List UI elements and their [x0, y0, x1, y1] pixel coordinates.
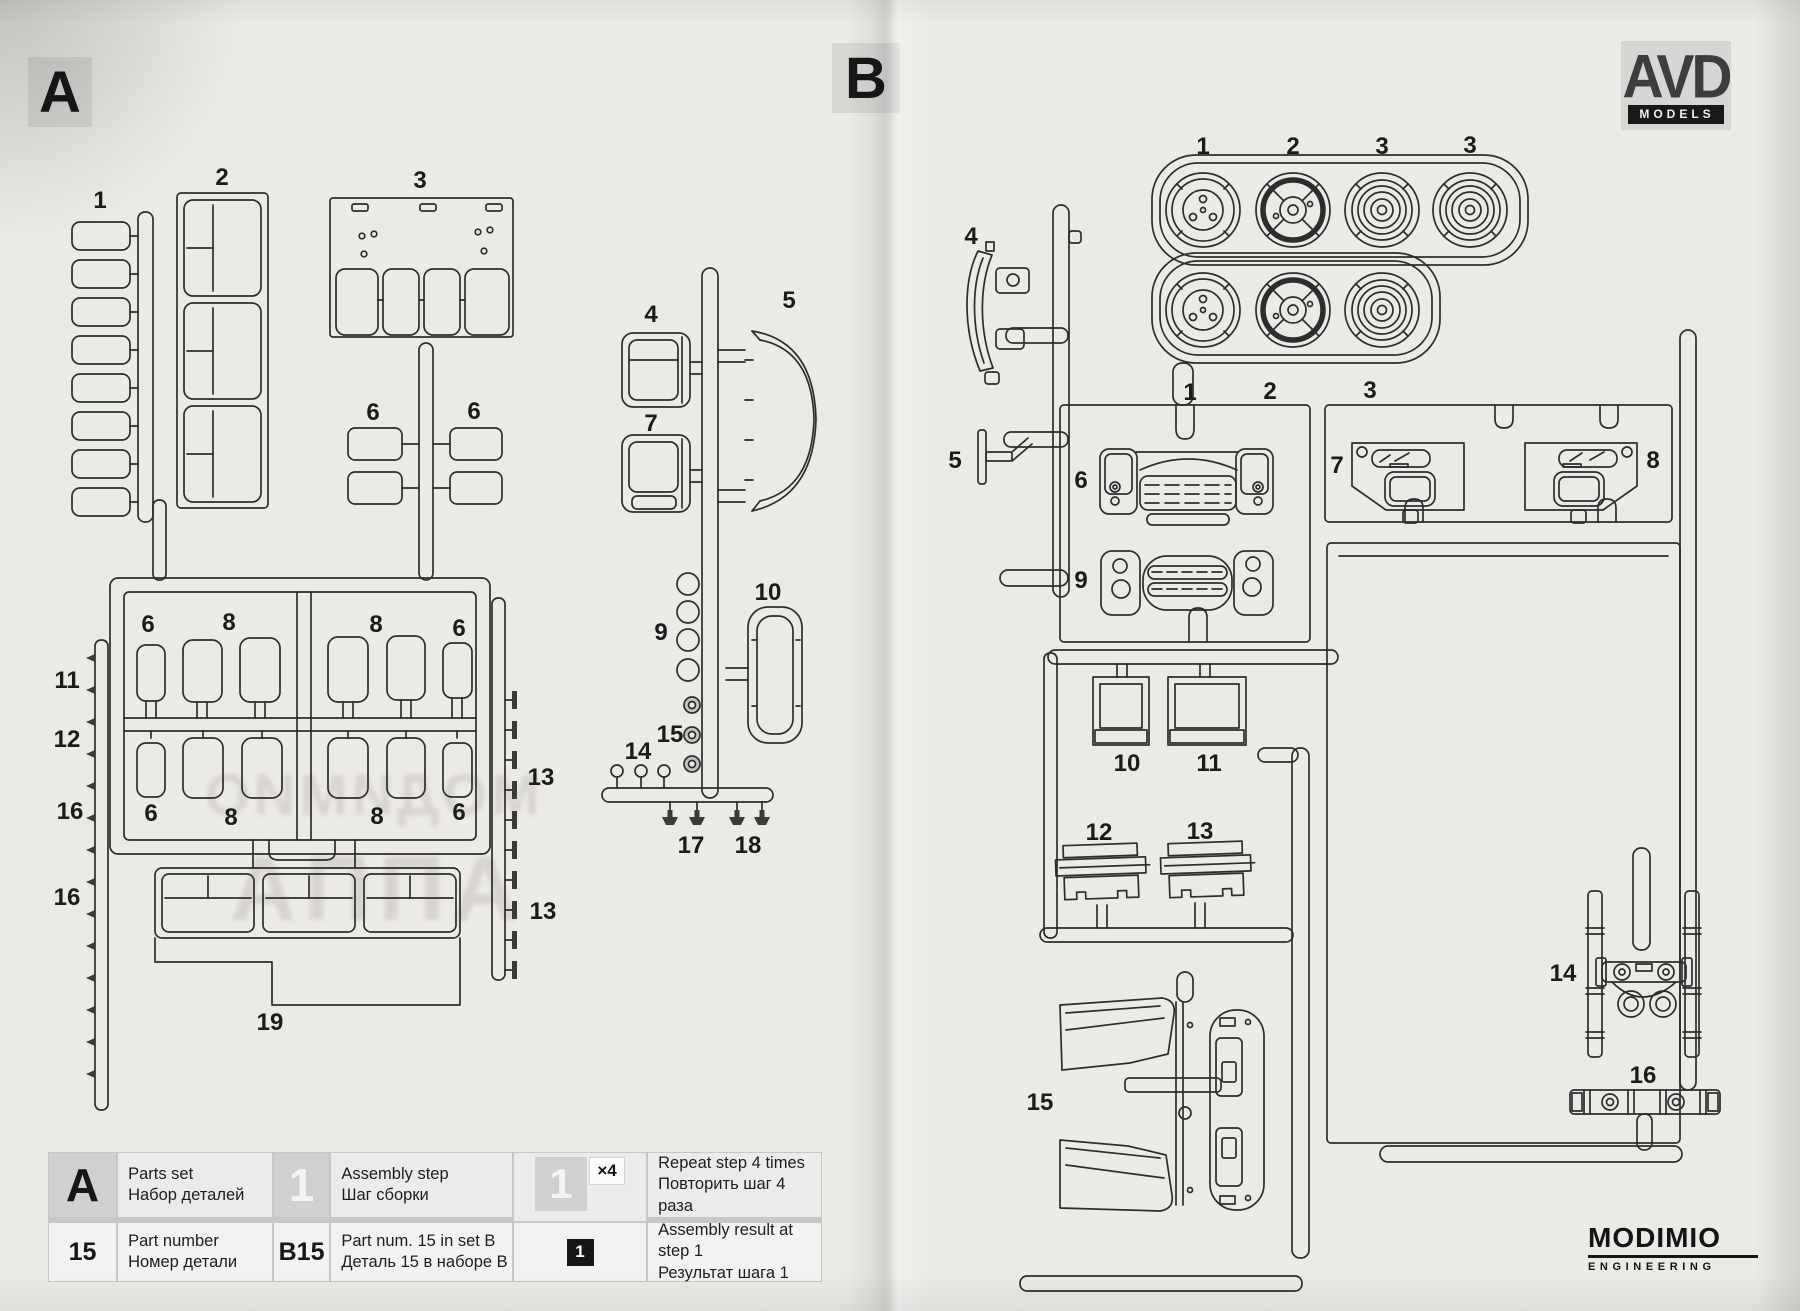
b-part-16: [1570, 1090, 1720, 1114]
part-label: 8: [1646, 447, 1659, 475]
part-label: 13: [528, 764, 555, 792]
modimio-name: MODIMIO: [1588, 1222, 1758, 1258]
part-label: 13: [1187, 818, 1214, 846]
part-label: 11: [1196, 750, 1221, 778]
legend-icon-part-number: 15: [49, 1223, 116, 1281]
part-label: 6: [1074, 467, 1087, 495]
part-label: 4: [644, 301, 657, 329]
part-label: 15: [657, 721, 684, 749]
part-label: 2: [1263, 378, 1276, 406]
modimio-engineering: ENGINEERING: [1588, 1261, 1758, 1273]
a-part-19: [155, 868, 460, 1005]
part-label: 3: [1363, 377, 1376, 405]
part-label: 10: [1114, 750, 1141, 778]
legend-text-assembly-result: Assembly result at step 1Результат шага …: [648, 1223, 821, 1281]
part-label: 2: [1286, 133, 1299, 161]
part-label: 8: [369, 611, 382, 639]
a-part-9: [677, 573, 699, 681]
legend-icon-parts-set: A: [49, 1153, 116, 1217]
avd-models-logo: AVD MODELS: [1621, 41, 1731, 130]
part-label: 16: [1630, 1062, 1657, 1090]
a-part-7: [622, 435, 702, 512]
part-label: 15: [1027, 1089, 1054, 1117]
part-label: 16: [54, 884, 81, 912]
b-part-7: [1352, 443, 1464, 523]
legend-table: A Parts setНабор деталей 1 Assembly step…: [48, 1152, 822, 1282]
parts-set-a-header: A: [28, 57, 92, 127]
assembly-result-box: 1: [567, 1239, 594, 1266]
a-part-15: [684, 697, 700, 772]
a-right-clips-runner: [492, 598, 517, 980]
part-label: 8: [370, 803, 383, 831]
legend-text-part-number: Part numberНомер детали: [118, 1223, 272, 1281]
legend-text-part-in-set: Part num. 15 in set BДеталь 15 в наборе …: [331, 1223, 512, 1281]
part-label: 12: [1086, 819, 1113, 847]
part-label: 6: [366, 399, 379, 427]
part-label: 5: [782, 287, 795, 315]
instruction-sheet: МОДИМИО АППА: [0, 0, 1800, 1311]
b-part-5: [978, 430, 1032, 484]
part-label: 6: [452, 799, 465, 827]
a-part-5: [718, 331, 816, 511]
b-part-14: [1586, 891, 1701, 1057]
a-part-1: [72, 212, 153, 522]
legend-text-parts-set: Parts setНабор деталей: [118, 1153, 272, 1217]
part-label: 16: [57, 798, 84, 826]
b-part-8: [1525, 443, 1637, 523]
legend-text-repeat-step: Repeat step 4 timesПовторить шаг 4 раза: [648, 1153, 821, 1217]
b-part-6: [1100, 449, 1273, 525]
part-label: 7: [1330, 452, 1343, 480]
part-label: 18: [735, 832, 762, 860]
b-part-15: [1060, 998, 1264, 1211]
part-label: 11: [54, 667, 79, 695]
part-label: 3: [1375, 133, 1388, 161]
part-label: 1: [1183, 379, 1196, 407]
part-label: 3: [1463, 132, 1476, 160]
b-runners: [1000, 205, 1696, 1291]
part-label: 1: [93, 187, 106, 215]
avd-logo-text: AVD: [1622, 48, 1729, 105]
legend-icon-repeat-step: 1 ×4: [514, 1153, 646, 1221]
repeat-step-box: 1: [535, 1157, 587, 1211]
part-label: 9: [654, 619, 667, 647]
modimio-logo: MODIMIO ENGINEERING: [1588, 1222, 1758, 1273]
part-label: 4: [964, 223, 977, 251]
b-part-4: [967, 242, 1029, 384]
a-part-10: [726, 607, 802, 743]
a-left-clips-runner: [86, 640, 108, 1110]
b-wheel-box: [1152, 155, 1528, 363]
a-part-2: [153, 193, 268, 580]
a-main-frame: [110, 578, 490, 868]
b-part-9: [1101, 551, 1273, 615]
part-label: 6: [144, 800, 157, 828]
legend-icon-part-in-set: B15: [274, 1223, 330, 1281]
part-label: 3: [413, 167, 426, 195]
part-label: 7: [644, 410, 657, 438]
part-label: 13: [530, 898, 557, 926]
part-label: 5: [948, 447, 961, 475]
part-label: 10: [755, 579, 782, 607]
legend-icon-assembly-result: 1: [514, 1223, 646, 1281]
part-label: 8: [222, 609, 235, 637]
part-label: 12: [54, 726, 81, 754]
a-part-14: [611, 765, 670, 788]
part-label: 1: [1196, 133, 1209, 161]
legend-icon-assembly-step: 1: [274, 1153, 330, 1217]
part-label: 14: [625, 738, 652, 766]
part-label: 17: [678, 832, 705, 860]
a-parts-17-18: [662, 802, 770, 825]
part-label: 6: [467, 398, 480, 426]
legend-text-assembly-step: Assembly stepШаг сборки: [331, 1153, 512, 1217]
part-label: 8: [224, 804, 237, 832]
part-label: 6: [452, 615, 465, 643]
part-label: 14: [1550, 960, 1577, 988]
part-label: 9: [1074, 567, 1087, 595]
part-label: 6: [141, 611, 154, 639]
part-label: 2: [215, 164, 228, 192]
b-parts-12-13: [1055, 841, 1256, 928]
part-label: 19: [257, 1009, 284, 1037]
b-parts-10-11: [1093, 664, 1246, 745]
b-big-box: [1327, 543, 1680, 1143]
parts-set-b-header: B: [832, 43, 900, 113]
repeat-count-badge: ×4: [589, 1157, 625, 1185]
a-part-4: [622, 333, 702, 407]
a-part-3: [330, 198, 513, 337]
a-part-6-top-pairs: [348, 343, 502, 580]
sprue-line-art: [0, 0, 1800, 1311]
